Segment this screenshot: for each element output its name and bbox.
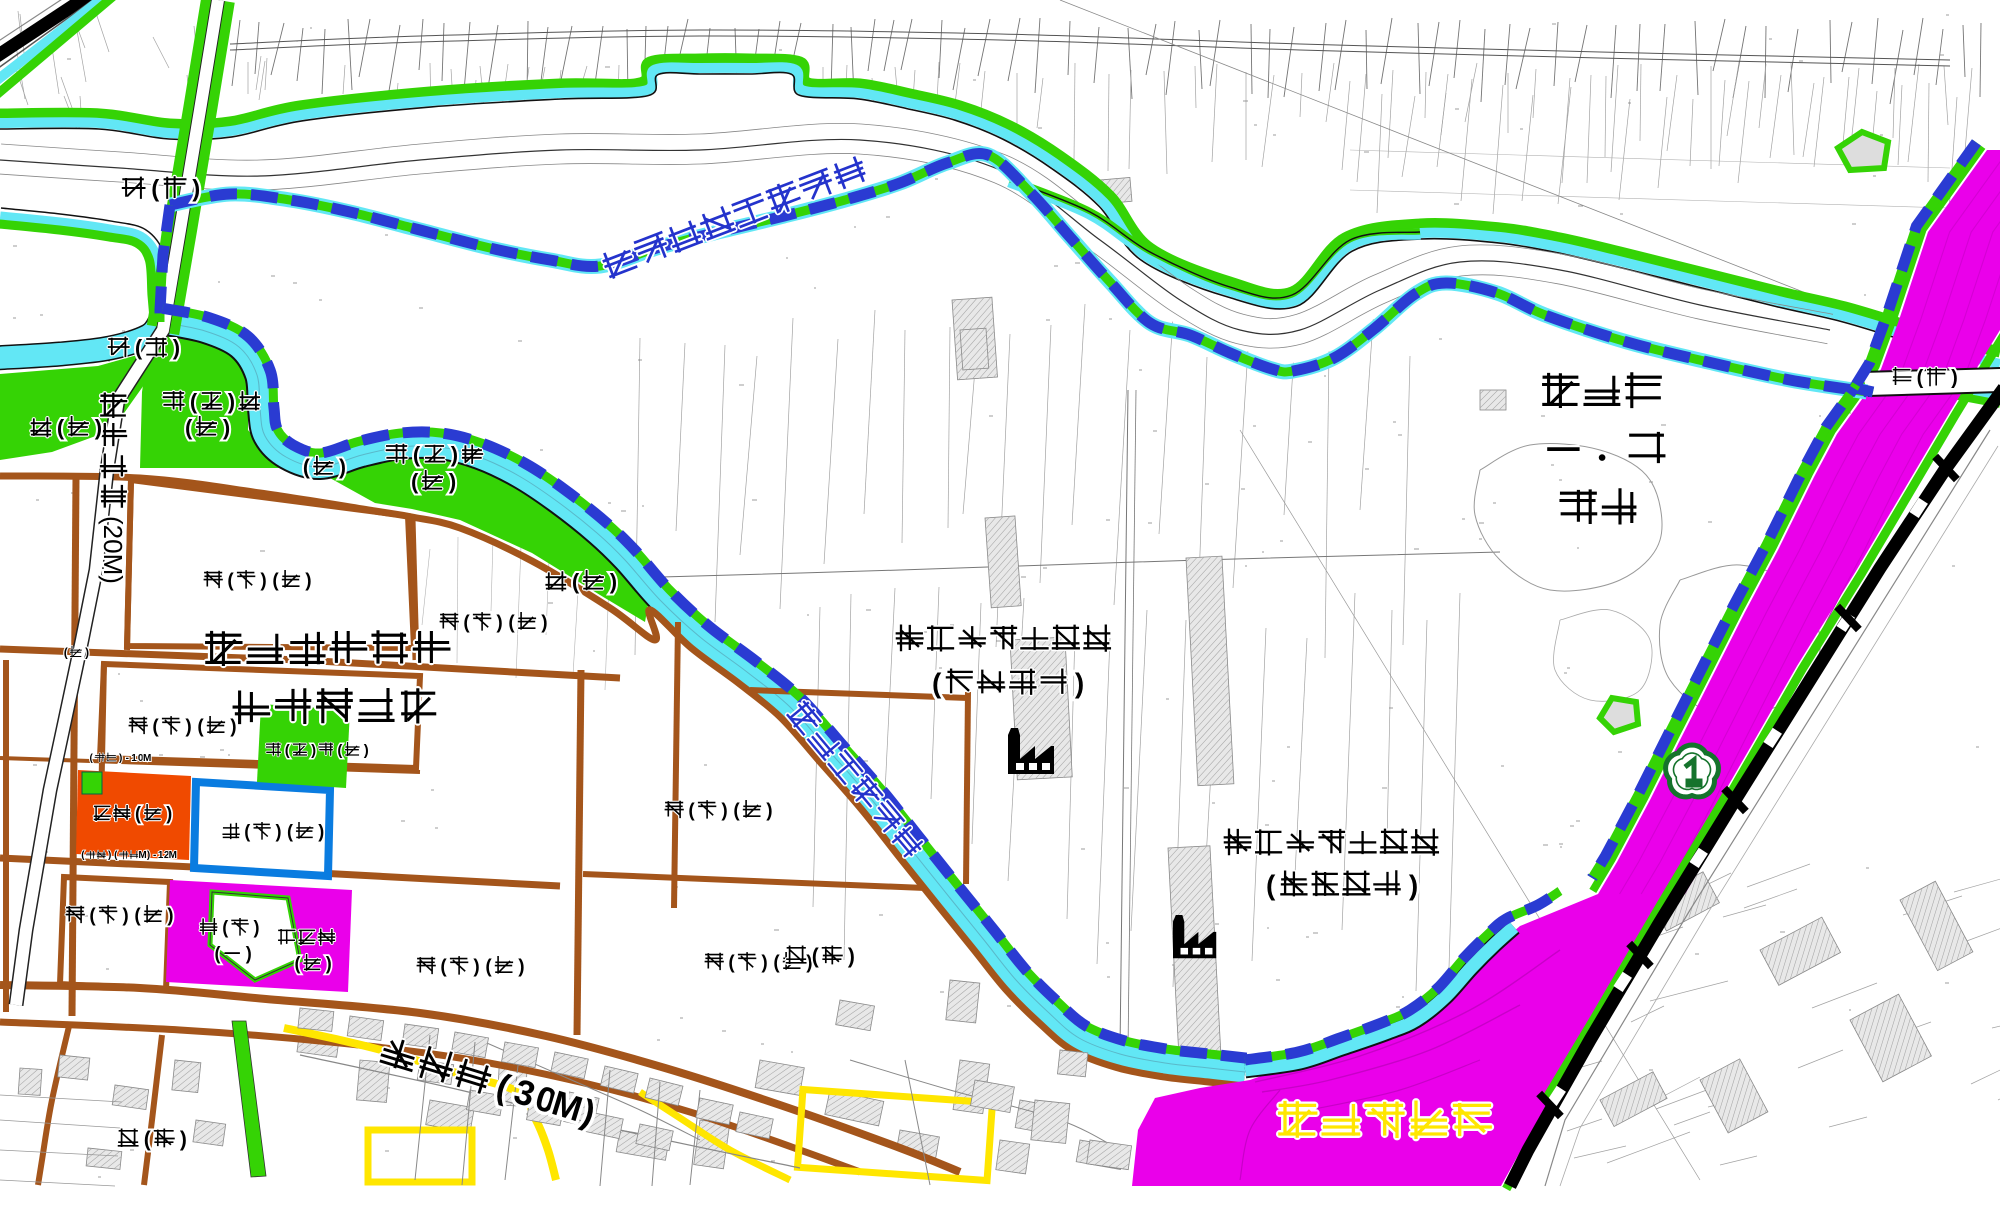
svg-text:): ) — [496, 612, 502, 633]
svg-text:(: ( — [337, 742, 342, 759]
svg-text:): ) — [147, 850, 150, 861]
svg-text:M: M — [143, 753, 151, 764]
svg-text:): ) — [180, 1128, 187, 1151]
svg-text:): ) — [246, 944, 252, 964]
svg-text:M: M — [138, 850, 146, 861]
svg-text:-: - — [126, 753, 129, 764]
svg-text:(: ( — [728, 952, 735, 973]
svg-text:): ) — [518, 956, 524, 977]
svg-text:-: - — [153, 850, 156, 861]
svg-text:(: ( — [463, 612, 470, 633]
svg-text:): ) — [451, 442, 458, 467]
svg-text:(: ( — [89, 905, 96, 926]
svg-text:): ) — [108, 850, 111, 861]
svg-text:): ) — [173, 335, 180, 360]
svg-text:): ) — [276, 822, 282, 842]
svg-text:): ) — [1951, 367, 1958, 389]
svg-text:(: ( — [151, 176, 159, 203]
svg-text:(: ( — [134, 905, 141, 926]
svg-text:(: ( — [244, 822, 250, 842]
svg-text:): ) — [318, 822, 324, 842]
svg-text:): ) — [721, 800, 727, 821]
svg-text:): ) — [339, 456, 346, 479]
svg-text:M: M — [169, 850, 177, 861]
svg-text:): ) — [848, 945, 855, 968]
svg-text:(: ( — [64, 646, 68, 660]
svg-text:): ) — [122, 905, 128, 926]
svg-text:(: ( — [227, 570, 234, 591]
svg-text:(: ( — [287, 822, 293, 842]
svg-text:(: ( — [773, 952, 780, 973]
svg-text:(: ( — [572, 569, 580, 594]
svg-text:(: ( — [197, 716, 204, 737]
svg-text:): ) — [95, 415, 102, 440]
svg-text:(: ( — [411, 469, 419, 494]
svg-text:): ) — [761, 952, 767, 973]
svg-text:): ) — [192, 176, 200, 203]
svg-text:(: ( — [932, 668, 942, 699]
svg-text:(: ( — [190, 389, 198, 414]
svg-text:(: ( — [144, 1128, 151, 1151]
svg-text:(: ( — [215, 944, 221, 964]
svg-text:(: ( — [295, 954, 301, 974]
svg-text:): ) — [449, 469, 456, 494]
svg-text:(: ( — [1917, 367, 1924, 389]
svg-text:): ) — [254, 918, 260, 938]
svg-text:(: ( — [135, 804, 141, 824]
svg-text:): ) — [228, 389, 235, 414]
svg-text:): ) — [1409, 870, 1418, 901]
svg-text:(20M): (20M) — [98, 516, 128, 584]
svg-text:): ) — [610, 569, 617, 594]
svg-text:(: ( — [222, 918, 228, 938]
svg-text:): ) — [166, 804, 172, 824]
svg-text:): ) — [119, 753, 122, 764]
svg-text:(: ( — [135, 335, 143, 360]
svg-text:(: ( — [185, 415, 193, 440]
svg-text:): ) — [260, 570, 266, 591]
svg-text:): ) — [223, 415, 230, 440]
svg-text:): ) — [1075, 668, 1084, 699]
svg-text:): ) — [326, 954, 332, 974]
svg-text:): ) — [230, 716, 236, 737]
svg-text:(: ( — [733, 800, 740, 821]
svg-text:(: ( — [303, 456, 310, 479]
svg-text:(: ( — [440, 956, 447, 977]
svg-text:(: ( — [57, 415, 65, 440]
svg-text:(: ( — [812, 945, 819, 968]
svg-text:): ) — [305, 570, 311, 591]
svg-text:1: 1 — [131, 753, 137, 764]
svg-text:(: ( — [152, 716, 159, 737]
svg-text:): ) — [311, 742, 316, 759]
svg-text:): ) — [167, 905, 173, 926]
svg-text:): ) — [185, 716, 191, 737]
svg-text:(: ( — [272, 570, 279, 591]
svg-text:): ) — [364, 742, 369, 759]
svg-text:): ) — [473, 956, 479, 977]
svg-text:): ) — [541, 612, 547, 633]
svg-text:): ) — [85, 646, 89, 660]
svg-text:): ) — [766, 800, 772, 821]
svg-text:(: ( — [285, 742, 290, 759]
svg-text:(: ( — [508, 612, 515, 633]
svg-text:(: ( — [688, 800, 695, 821]
svg-text:(: ( — [1266, 870, 1276, 901]
svg-text:(: ( — [413, 442, 421, 467]
svg-text:(: ( — [485, 956, 492, 977]
